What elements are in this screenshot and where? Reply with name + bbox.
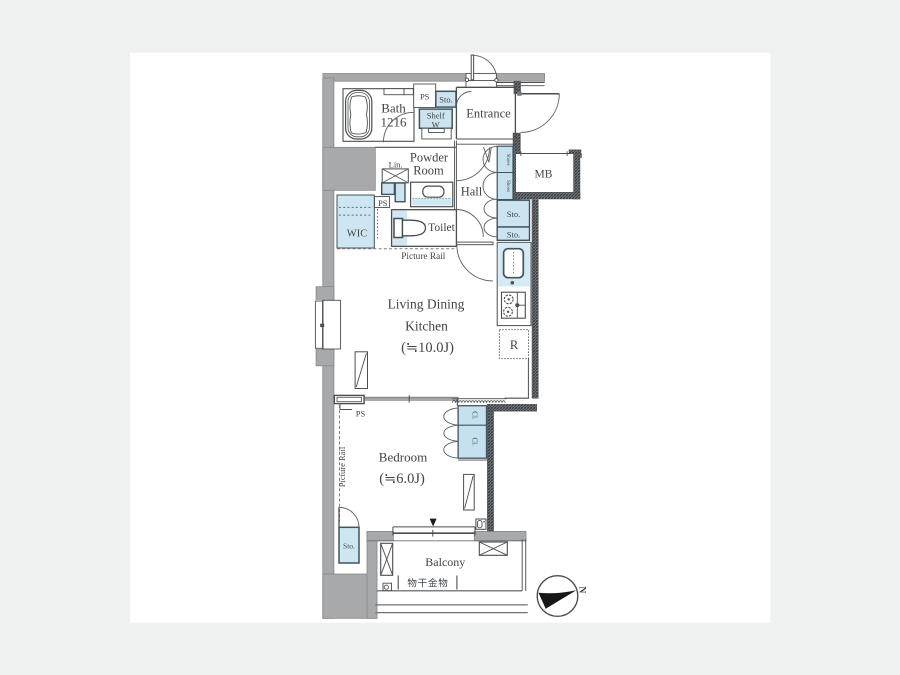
svg-text:Cl.: Cl. [470,438,478,447]
svg-text:(≒10.0J): (≒10.0J) [401,340,454,356]
svg-text:R: R [510,338,519,352]
svg-text:PS: PS [378,198,388,208]
svg-text:Entrance: Entrance [466,107,511,121]
svg-text:Sto.: Sto. [439,95,452,105]
svg-text:Shoes: Shoes [505,180,510,192]
svg-text:Balcony: Balcony [425,555,465,569]
svg-text:MB: MB [535,169,553,181]
svg-text:Kitchen: Kitchen [405,319,448,334]
svg-text:Picture Rail: Picture Rail [337,446,347,487]
svg-text:Living Dining: Living Dining [388,297,465,312]
svg-text:Lin.: Lin. [389,160,403,170]
svg-text:PS: PS [420,92,430,102]
svg-text:W: W [432,119,440,129]
svg-text:Picture Rail: Picture Rail [401,252,446,262]
svg-text:物干金物: 物干金物 [407,577,448,589]
svg-text:Bedroom: Bedroom [379,450,427,465]
svg-text:Shoes: Shoes [505,154,510,166]
svg-text:Powder: Powder [410,151,449,165]
svg-text:N: N [577,586,587,593]
svg-text:Sto.: Sto. [507,229,520,239]
svg-text:Hall: Hall [461,185,483,199]
svg-text:Toilet: Toilet [428,222,455,234]
svg-text:WIC: WIC [347,228,367,239]
svg-text:Sto.: Sto. [343,542,355,551]
svg-text:Bath: Bath [381,101,406,116]
svg-text:(≒6.0J): (≒6.0J) [379,471,425,487]
svg-text:Sto.: Sto. [507,209,520,219]
svg-text:Room: Room [413,164,444,178]
svg-text:Cl.: Cl. [470,411,478,420]
svg-text:PS: PS [356,409,366,419]
svg-text:1216: 1216 [381,115,408,130]
